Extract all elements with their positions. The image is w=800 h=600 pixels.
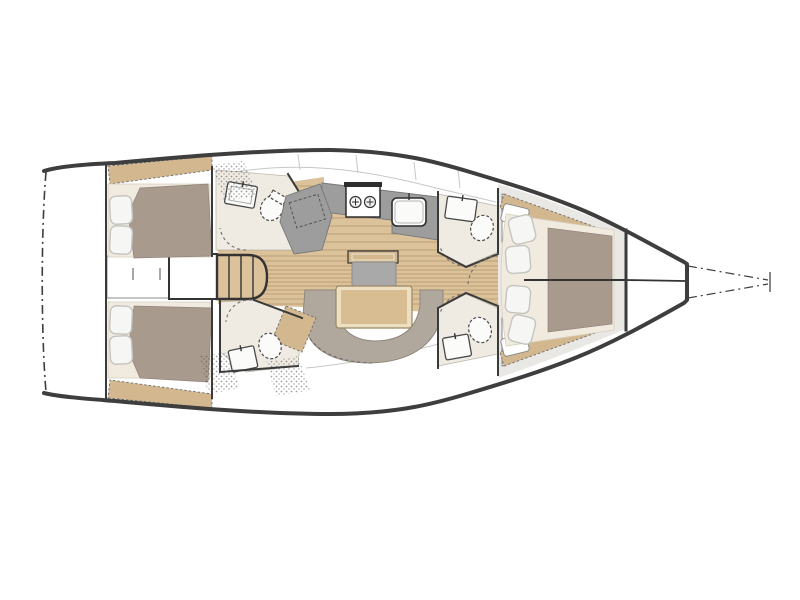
pillow	[109, 305, 132, 334]
companionway-steps	[217, 255, 267, 299]
pillow	[505, 245, 531, 274]
pillow	[109, 335, 132, 364]
double-berth-mattress	[128, 306, 212, 382]
galley-sink	[392, 193, 426, 226]
pillow	[109, 195, 132, 224]
bow-centerline	[626, 280, 685, 281]
stove	[344, 182, 382, 217]
aft-starboard-cabin	[108, 302, 212, 408]
bow-anchor-locker	[626, 280, 685, 281]
midship-band	[107, 254, 267, 299]
aft-port-cabin	[108, 156, 212, 258]
bowsprit-outline	[688, 266, 770, 298]
double-berth-mattress	[128, 184, 212, 258]
floor-plan-canvas	[0, 0, 800, 600]
pillow	[109, 225, 132, 254]
pillow	[505, 285, 531, 314]
settee-bench-rail	[348, 251, 398, 263]
dinette-table-top	[341, 290, 407, 324]
engine-compartment	[169, 254, 217, 299]
yacht-interior-floor-plan	[0, 0, 800, 600]
